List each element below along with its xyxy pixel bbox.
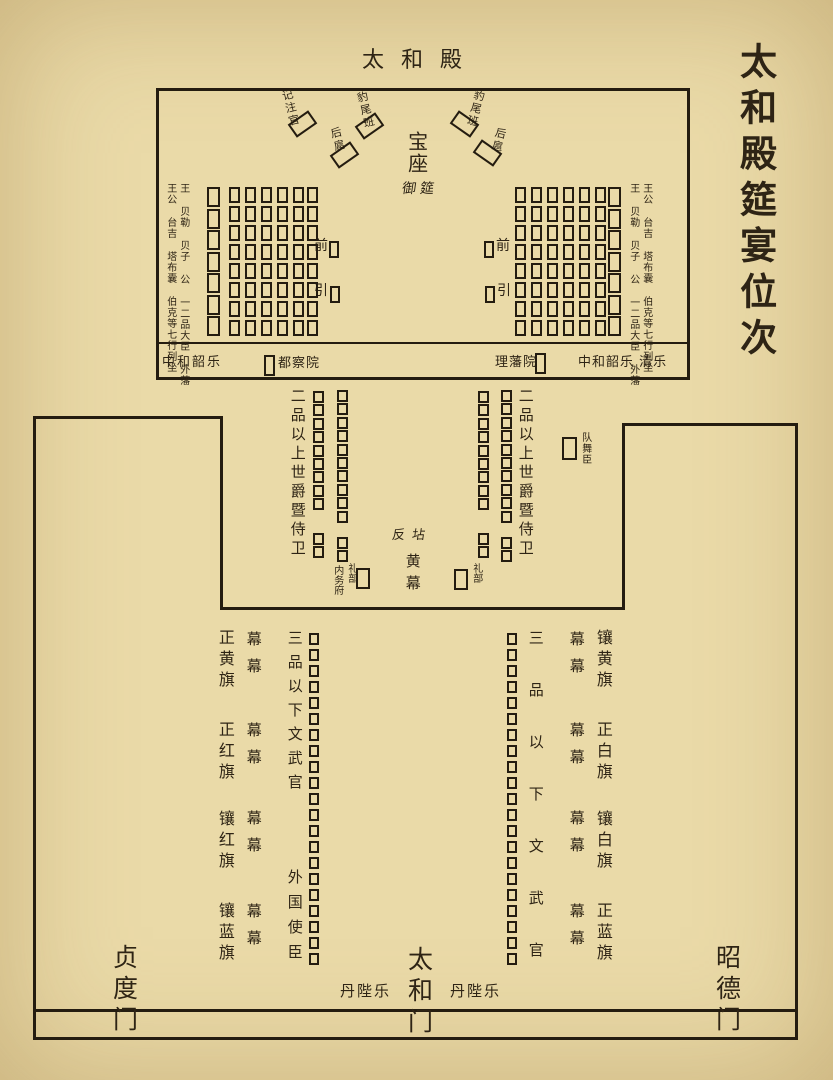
nobles-grid-left bbox=[261, 206, 272, 222]
officials-column-left bbox=[309, 761, 319, 773]
nobles-grid-right bbox=[563, 320, 574, 336]
nobles-grid-right bbox=[563, 263, 574, 279]
officials-column-right bbox=[507, 937, 517, 949]
guard-column-left bbox=[337, 550, 348, 562]
guard-column-right bbox=[501, 537, 512, 549]
nobles-grid-right bbox=[595, 282, 606, 298]
guard-column-left bbox=[313, 485, 324, 497]
nobles-grid-left bbox=[261, 282, 272, 298]
nobles-grid-right bbox=[579, 225, 590, 241]
nobles-grid-left bbox=[261, 187, 272, 203]
officials-column-left bbox=[309, 841, 319, 853]
guard-column-right bbox=[501, 457, 512, 469]
guard-column-left bbox=[313, 445, 324, 457]
nobles-grid-right bbox=[515, 320, 526, 336]
nobles-grid-left bbox=[277, 187, 288, 203]
nobles-grid-right bbox=[595, 263, 606, 279]
nobles-grid-left bbox=[261, 244, 272, 260]
guard-column-right bbox=[478, 546, 489, 558]
nobles-grid-right bbox=[531, 282, 542, 298]
officials-column-right bbox=[507, 761, 517, 773]
officials-column-left bbox=[309, 873, 319, 885]
princes-column-left bbox=[207, 252, 220, 272]
nobles-grid-right bbox=[515, 206, 526, 222]
nobles-grid-left bbox=[245, 282, 256, 298]
guard-column-right bbox=[501, 550, 512, 562]
nobles-grid-right bbox=[547, 187, 558, 203]
princes-column-right bbox=[608, 252, 621, 272]
leopard-tail-seat-left bbox=[355, 112, 385, 139]
guard-column-left bbox=[337, 537, 348, 549]
nobles-grid-right bbox=[579, 301, 590, 317]
guard-column-left bbox=[337, 484, 348, 496]
guard-column-right bbox=[501, 417, 512, 429]
nobles-grid-left bbox=[277, 263, 288, 279]
front-guide-seat-right bbox=[485, 286, 495, 303]
guard-column-right bbox=[478, 471, 489, 483]
nobles-grid-left bbox=[229, 206, 240, 222]
guard-column-left bbox=[337, 444, 348, 456]
guard-column-right bbox=[501, 430, 512, 442]
nobles-grid-left bbox=[277, 282, 288, 298]
nobles-grid-left bbox=[245, 301, 256, 317]
officials-column-right bbox=[507, 857, 517, 869]
nobles-grid-left bbox=[307, 301, 318, 317]
nobles-grid-left bbox=[277, 320, 288, 336]
nobles-grid-left bbox=[229, 301, 240, 317]
dance-troupe-seat bbox=[562, 437, 577, 460]
officials-column-left bbox=[309, 649, 319, 661]
nobles-grid-left bbox=[293, 206, 304, 222]
nobles-grid-left bbox=[245, 206, 256, 222]
officials-column-right bbox=[507, 777, 517, 789]
officials-column-left bbox=[309, 729, 319, 741]
guard-column-right bbox=[478, 445, 489, 457]
nobles-grid-left bbox=[277, 301, 288, 317]
nobles-grid-left bbox=[261, 263, 272, 279]
officials-column-right bbox=[507, 889, 517, 901]
nobles-grid-left bbox=[261, 320, 272, 336]
nobles-grid-right bbox=[515, 187, 526, 203]
nobles-grid-right bbox=[515, 244, 526, 260]
nobles-grid-left bbox=[229, 225, 240, 241]
nobles-grid-right bbox=[595, 187, 606, 203]
guard-column-left bbox=[313, 404, 324, 416]
dependencies-court-seat bbox=[535, 353, 546, 374]
nobles-grid-right bbox=[531, 263, 542, 279]
nobles-grid-left bbox=[229, 187, 240, 203]
princes-column-left bbox=[207, 230, 220, 250]
guard-column-left bbox=[337, 430, 348, 442]
officials-column-left bbox=[309, 809, 319, 821]
princes-column-right bbox=[608, 209, 621, 229]
nobles-grid-left bbox=[307, 244, 318, 260]
nobles-grid-right bbox=[547, 225, 558, 241]
seats-layer bbox=[0, 0, 833, 1080]
officials-column-left bbox=[309, 777, 319, 789]
seating-chart-canvas: 太和殿 太和殿筵宴位次 记注官 豹尾班 后扈 豹尾班 后扈 宝座 御筵 王公 台… bbox=[0, 0, 833, 1080]
guard-column-left bbox=[337, 457, 348, 469]
nobles-grid-left bbox=[307, 263, 318, 279]
nobles-grid-right bbox=[531, 320, 542, 336]
nobles-grid-right bbox=[547, 206, 558, 222]
guard-column-left bbox=[313, 498, 324, 510]
nobles-grid-right bbox=[531, 206, 542, 222]
guard-column-left bbox=[313, 471, 324, 483]
officials-column-right bbox=[507, 873, 517, 885]
officials-column-right bbox=[507, 905, 517, 917]
guard-column-right bbox=[478, 418, 489, 430]
nobles-grid-left bbox=[229, 282, 240, 298]
guard-column-left bbox=[313, 391, 324, 403]
nobles-grid-right bbox=[595, 320, 606, 336]
nobles-grid-left bbox=[261, 301, 272, 317]
nobles-grid-right bbox=[547, 263, 558, 279]
nobles-grid-left bbox=[245, 263, 256, 279]
nobles-grid-left bbox=[293, 244, 304, 260]
officials-column-left bbox=[309, 745, 319, 757]
rear-escort-seat-right bbox=[473, 139, 503, 166]
nobles-grid-right bbox=[515, 301, 526, 317]
officials-column-right bbox=[507, 681, 517, 693]
guard-column-right bbox=[501, 390, 512, 402]
nobles-grid-right bbox=[531, 187, 542, 203]
guard-column-left bbox=[313, 458, 324, 470]
guard-column-right bbox=[501, 511, 512, 523]
officials-column-left bbox=[309, 889, 319, 901]
officials-column-left bbox=[309, 697, 319, 709]
nobles-grid-right bbox=[579, 206, 590, 222]
nobles-grid-right bbox=[515, 282, 526, 298]
nobles-grid-right bbox=[515, 263, 526, 279]
officials-column-left bbox=[309, 633, 319, 645]
nobles-grid-left bbox=[307, 187, 318, 203]
nobles-grid-right bbox=[579, 320, 590, 336]
nobles-grid-right bbox=[579, 187, 590, 203]
nobles-grid-right bbox=[595, 301, 606, 317]
nobles-grid-left bbox=[277, 225, 288, 241]
officials-column-right bbox=[507, 713, 517, 725]
officials-column-right bbox=[507, 697, 517, 709]
guard-column-right bbox=[478, 533, 489, 545]
officials-column-left bbox=[309, 857, 319, 869]
guard-column-right bbox=[478, 498, 489, 510]
officials-column-left bbox=[309, 825, 319, 837]
officials-column-right bbox=[507, 953, 517, 965]
nobles-grid-right bbox=[531, 244, 542, 260]
guard-column-right bbox=[501, 470, 512, 482]
rites-seat-right bbox=[454, 569, 468, 590]
censorate-seat bbox=[264, 355, 275, 376]
rear-escort-seat-left bbox=[330, 141, 360, 168]
nobles-grid-right bbox=[579, 244, 590, 260]
nobles-grid-left bbox=[245, 244, 256, 260]
leopard-tail-seat-right bbox=[450, 110, 480, 137]
nobles-grid-right bbox=[547, 282, 558, 298]
guard-column-left bbox=[337, 511, 348, 523]
officials-column-right bbox=[507, 793, 517, 805]
guard-column-left bbox=[337, 417, 348, 429]
guard-column-right bbox=[501, 497, 512, 509]
officials-column-right bbox=[507, 649, 517, 661]
princes-column-left bbox=[207, 295, 220, 315]
officials-column-right bbox=[507, 745, 517, 757]
officials-column-right bbox=[507, 729, 517, 741]
nobles-grid-left bbox=[307, 282, 318, 298]
officials-column-right bbox=[507, 921, 517, 933]
princes-column-right bbox=[608, 187, 621, 207]
nobles-grid-left bbox=[229, 244, 240, 260]
officials-column-right bbox=[507, 825, 517, 837]
nobles-grid-right bbox=[547, 301, 558, 317]
nobles-grid-right bbox=[547, 320, 558, 336]
nobles-grid-left bbox=[293, 225, 304, 241]
nobles-grid-right bbox=[563, 225, 574, 241]
nobles-grid-right bbox=[531, 225, 542, 241]
guard-column-right bbox=[478, 391, 489, 403]
guard-column-right bbox=[501, 403, 512, 415]
nobles-grid-left bbox=[293, 282, 304, 298]
recorder-seat bbox=[288, 110, 318, 137]
nobles-grid-right bbox=[547, 244, 558, 260]
officials-column-left bbox=[309, 713, 319, 725]
guard-column-left bbox=[337, 403, 348, 415]
nobles-grid-left bbox=[245, 225, 256, 241]
guard-column-right bbox=[501, 444, 512, 456]
officials-column-right bbox=[507, 809, 517, 821]
guard-column-right bbox=[478, 485, 489, 497]
officials-column-left bbox=[309, 953, 319, 965]
officials-column-left bbox=[309, 937, 319, 949]
princes-column-right bbox=[608, 230, 621, 250]
guard-column-left bbox=[313, 546, 324, 558]
guard-column-left bbox=[337, 470, 348, 482]
nobles-grid-right bbox=[531, 301, 542, 317]
officials-column-right bbox=[507, 633, 517, 645]
officials-column-left bbox=[309, 921, 319, 933]
nobles-grid-right bbox=[579, 263, 590, 279]
guard-column-left bbox=[313, 533, 324, 545]
officials-column-left bbox=[309, 905, 319, 917]
nobles-grid-right bbox=[595, 225, 606, 241]
officials-column-left bbox=[309, 665, 319, 677]
nobles-grid-left bbox=[307, 206, 318, 222]
nobles-grid-left bbox=[245, 187, 256, 203]
princes-column-left bbox=[207, 273, 220, 293]
officials-column-left bbox=[309, 681, 319, 693]
front-guide-seat-right bbox=[484, 241, 494, 258]
nobles-grid-right bbox=[579, 282, 590, 298]
nobles-grid-left bbox=[293, 301, 304, 317]
nobles-grid-left bbox=[277, 244, 288, 260]
princes-column-left bbox=[207, 187, 220, 207]
nobles-grid-right bbox=[563, 187, 574, 203]
officials-column-right bbox=[507, 665, 517, 677]
officials-column-right bbox=[507, 841, 517, 853]
nobles-grid-left bbox=[307, 320, 318, 336]
guard-column-left bbox=[313, 431, 324, 443]
princes-column-right bbox=[608, 273, 621, 293]
nobles-grid-left bbox=[307, 225, 318, 241]
guard-column-right bbox=[478, 404, 489, 416]
guard-column-left bbox=[313, 418, 324, 430]
front-guide-seat-left bbox=[330, 286, 340, 303]
nobles-grid-left bbox=[245, 320, 256, 336]
nobles-grid-left bbox=[229, 320, 240, 336]
nobles-grid-left bbox=[229, 263, 240, 279]
nobles-grid-right bbox=[563, 244, 574, 260]
nobles-grid-right bbox=[515, 225, 526, 241]
guard-column-right bbox=[478, 431, 489, 443]
princes-column-right bbox=[608, 295, 621, 315]
princes-column-left bbox=[207, 209, 220, 229]
nobles-grid-right bbox=[595, 206, 606, 222]
guard-column-right bbox=[478, 458, 489, 470]
guard-column-left bbox=[337, 497, 348, 509]
nobles-grid-right bbox=[595, 244, 606, 260]
princes-column-right bbox=[608, 316, 621, 336]
nobles-grid-left bbox=[261, 225, 272, 241]
guard-column-right bbox=[501, 484, 512, 496]
nobles-grid-right bbox=[563, 206, 574, 222]
nobles-grid-right bbox=[563, 282, 574, 298]
nobles-grid-right bbox=[563, 301, 574, 317]
officials-column-left bbox=[309, 793, 319, 805]
nobles-grid-left bbox=[293, 263, 304, 279]
nobles-grid-left bbox=[293, 187, 304, 203]
nobles-grid-left bbox=[293, 320, 304, 336]
nobles-grid-left bbox=[277, 206, 288, 222]
princes-column-left bbox=[207, 316, 220, 336]
front-guide-seat-left bbox=[329, 241, 339, 258]
household-rites-seat-left bbox=[356, 568, 370, 589]
guard-column-left bbox=[337, 390, 348, 402]
